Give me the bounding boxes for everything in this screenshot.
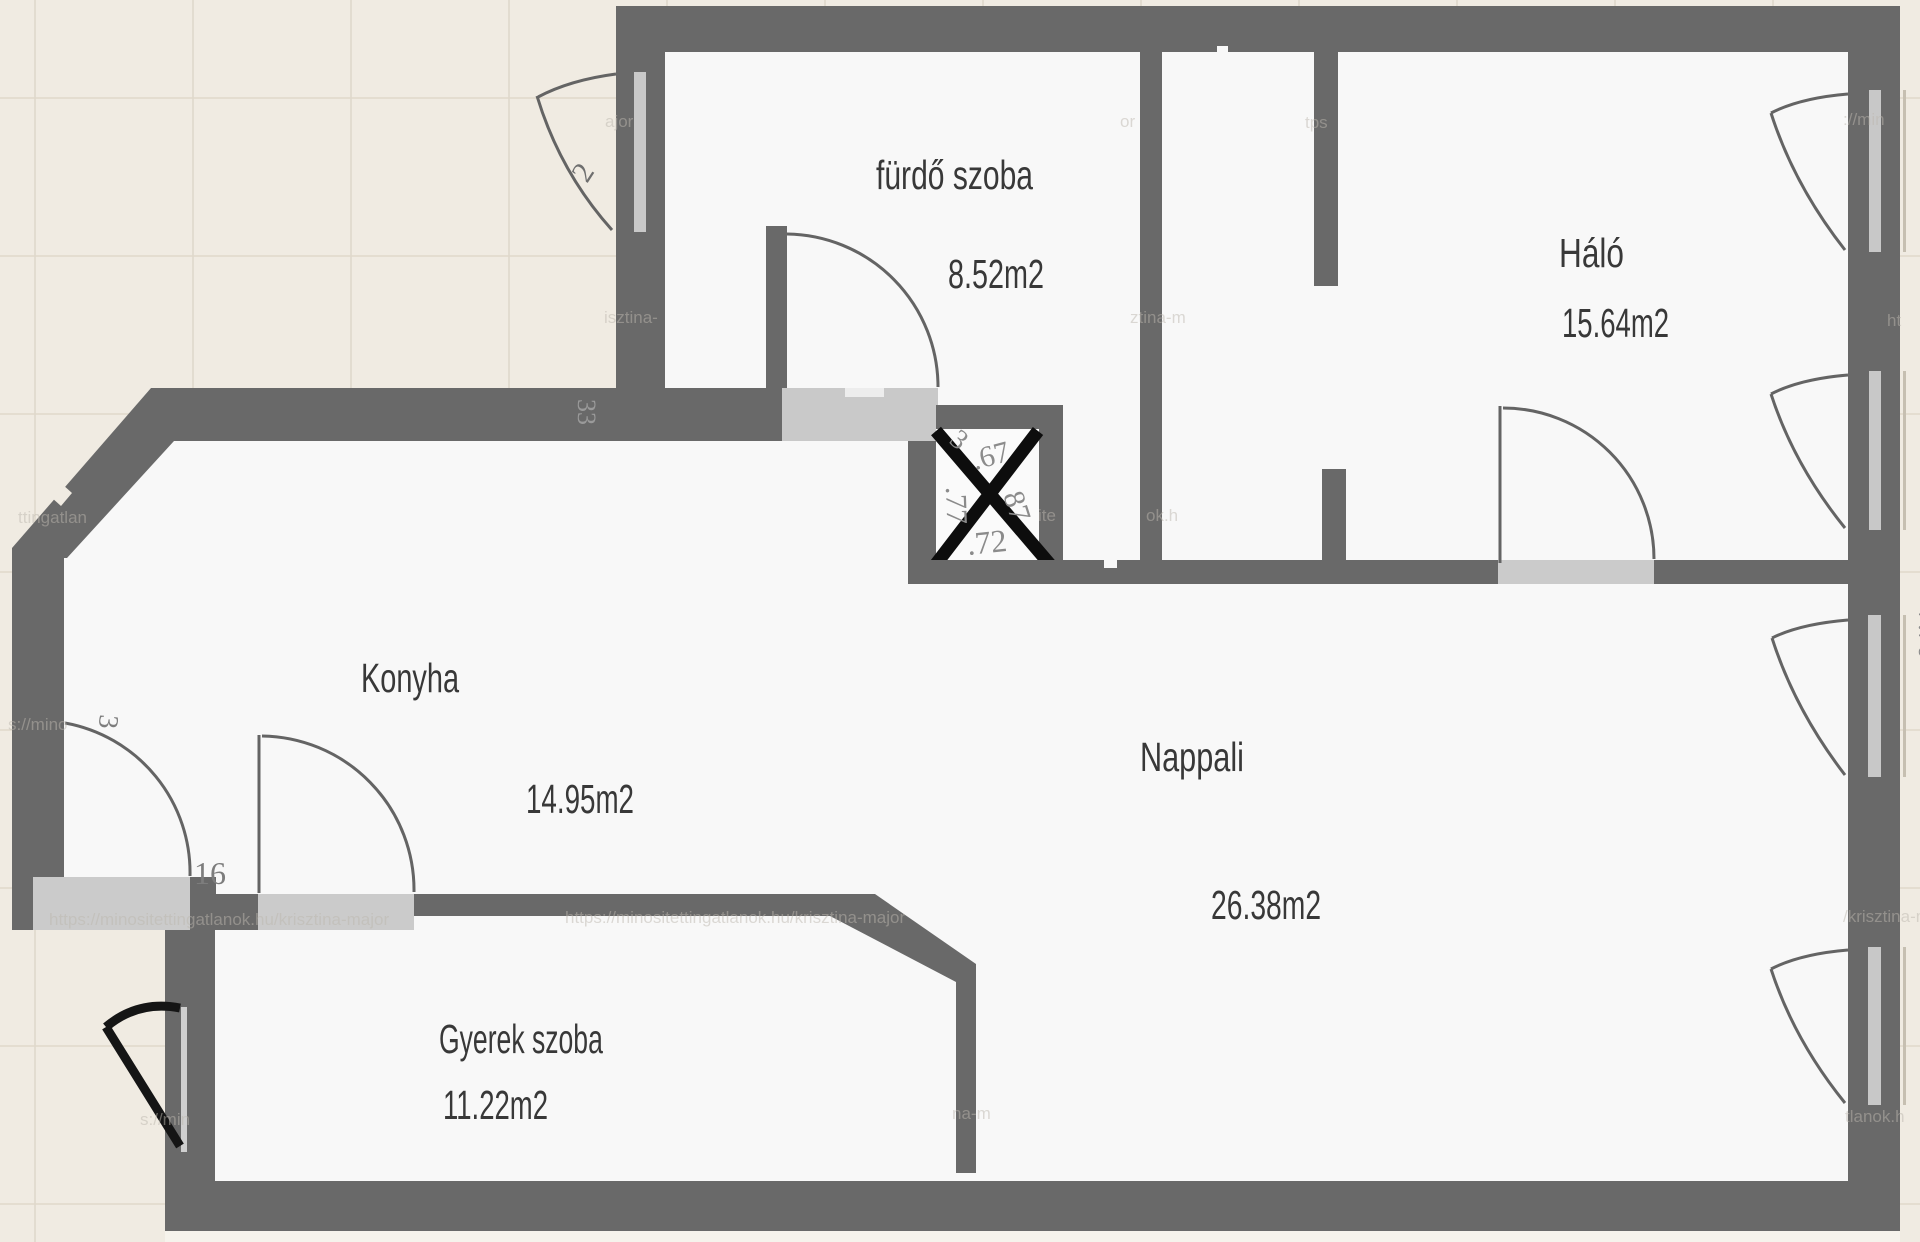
svg-text:8.52m2: 8.52m2 [948, 251, 1044, 297]
svg-text:or: or [1120, 112, 1135, 131]
svg-text:Gyerek szoba: Gyerek szoba [439, 1017, 603, 1062]
svg-text:16: 16 [194, 855, 226, 891]
svg-text:Konyha: Konyha [361, 655, 459, 701]
svg-text:14.95m2: 14.95m2 [526, 777, 634, 823]
svg-text:/krisztina-ma: /krisztina-ma [1843, 907, 1920, 926]
svg-text:26.38m2: 26.38m2 [1211, 883, 1321, 928]
svg-text:ht: ht [1887, 311, 1901, 330]
svg-text:ajor: ajor [605, 112, 634, 131]
svg-text:Nappali: Nappali [1140, 734, 1244, 780]
svg-text:Háló: Háló [1559, 230, 1624, 276]
svg-text:tps: tps [1305, 113, 1328, 132]
svg-text:s://mino: s://mino [8, 715, 68, 734]
svg-text:33: 33 [572, 399, 601, 425]
svg-text:https://minositettingatlanok.h: https://minositettingatlanok.hu/krisztin… [49, 910, 389, 929]
svg-text:ttingatlan: ttingatlan [18, 508, 87, 527]
svg-text:na-m: na-m [952, 1104, 991, 1123]
svg-text:ite: ite [1038, 506, 1056, 525]
svg-text:ztina-m: ztina-m [1130, 308, 1186, 327]
svg-text:https://minositettingatlanok.h: https://minositettingatlanok.hu/krisztin… [565, 908, 905, 927]
svg-text:isztina-: isztina- [604, 308, 658, 327]
svg-text:15.64m2: 15.64m2 [1562, 301, 1669, 347]
svg-text:://min: ://min [1843, 110, 1885, 129]
svg-text:.72: .72 [965, 522, 1009, 562]
svg-text:ok.h: ok.h [1146, 506, 1178, 525]
svg-text:fürdő szoba: fürdő szoba [876, 151, 1033, 198]
svg-text:3: 3 [92, 713, 124, 730]
svg-text:7.70: 7.70 [1912, 610, 1920, 659]
svg-text:s://min: s://min [140, 1110, 190, 1129]
svg-text:11.22m2: 11.22m2 [443, 1083, 548, 1129]
svg-text:.77: .77 [939, 486, 973, 525]
svg-text:tlanok.h: tlanok.h [1845, 1107, 1905, 1126]
